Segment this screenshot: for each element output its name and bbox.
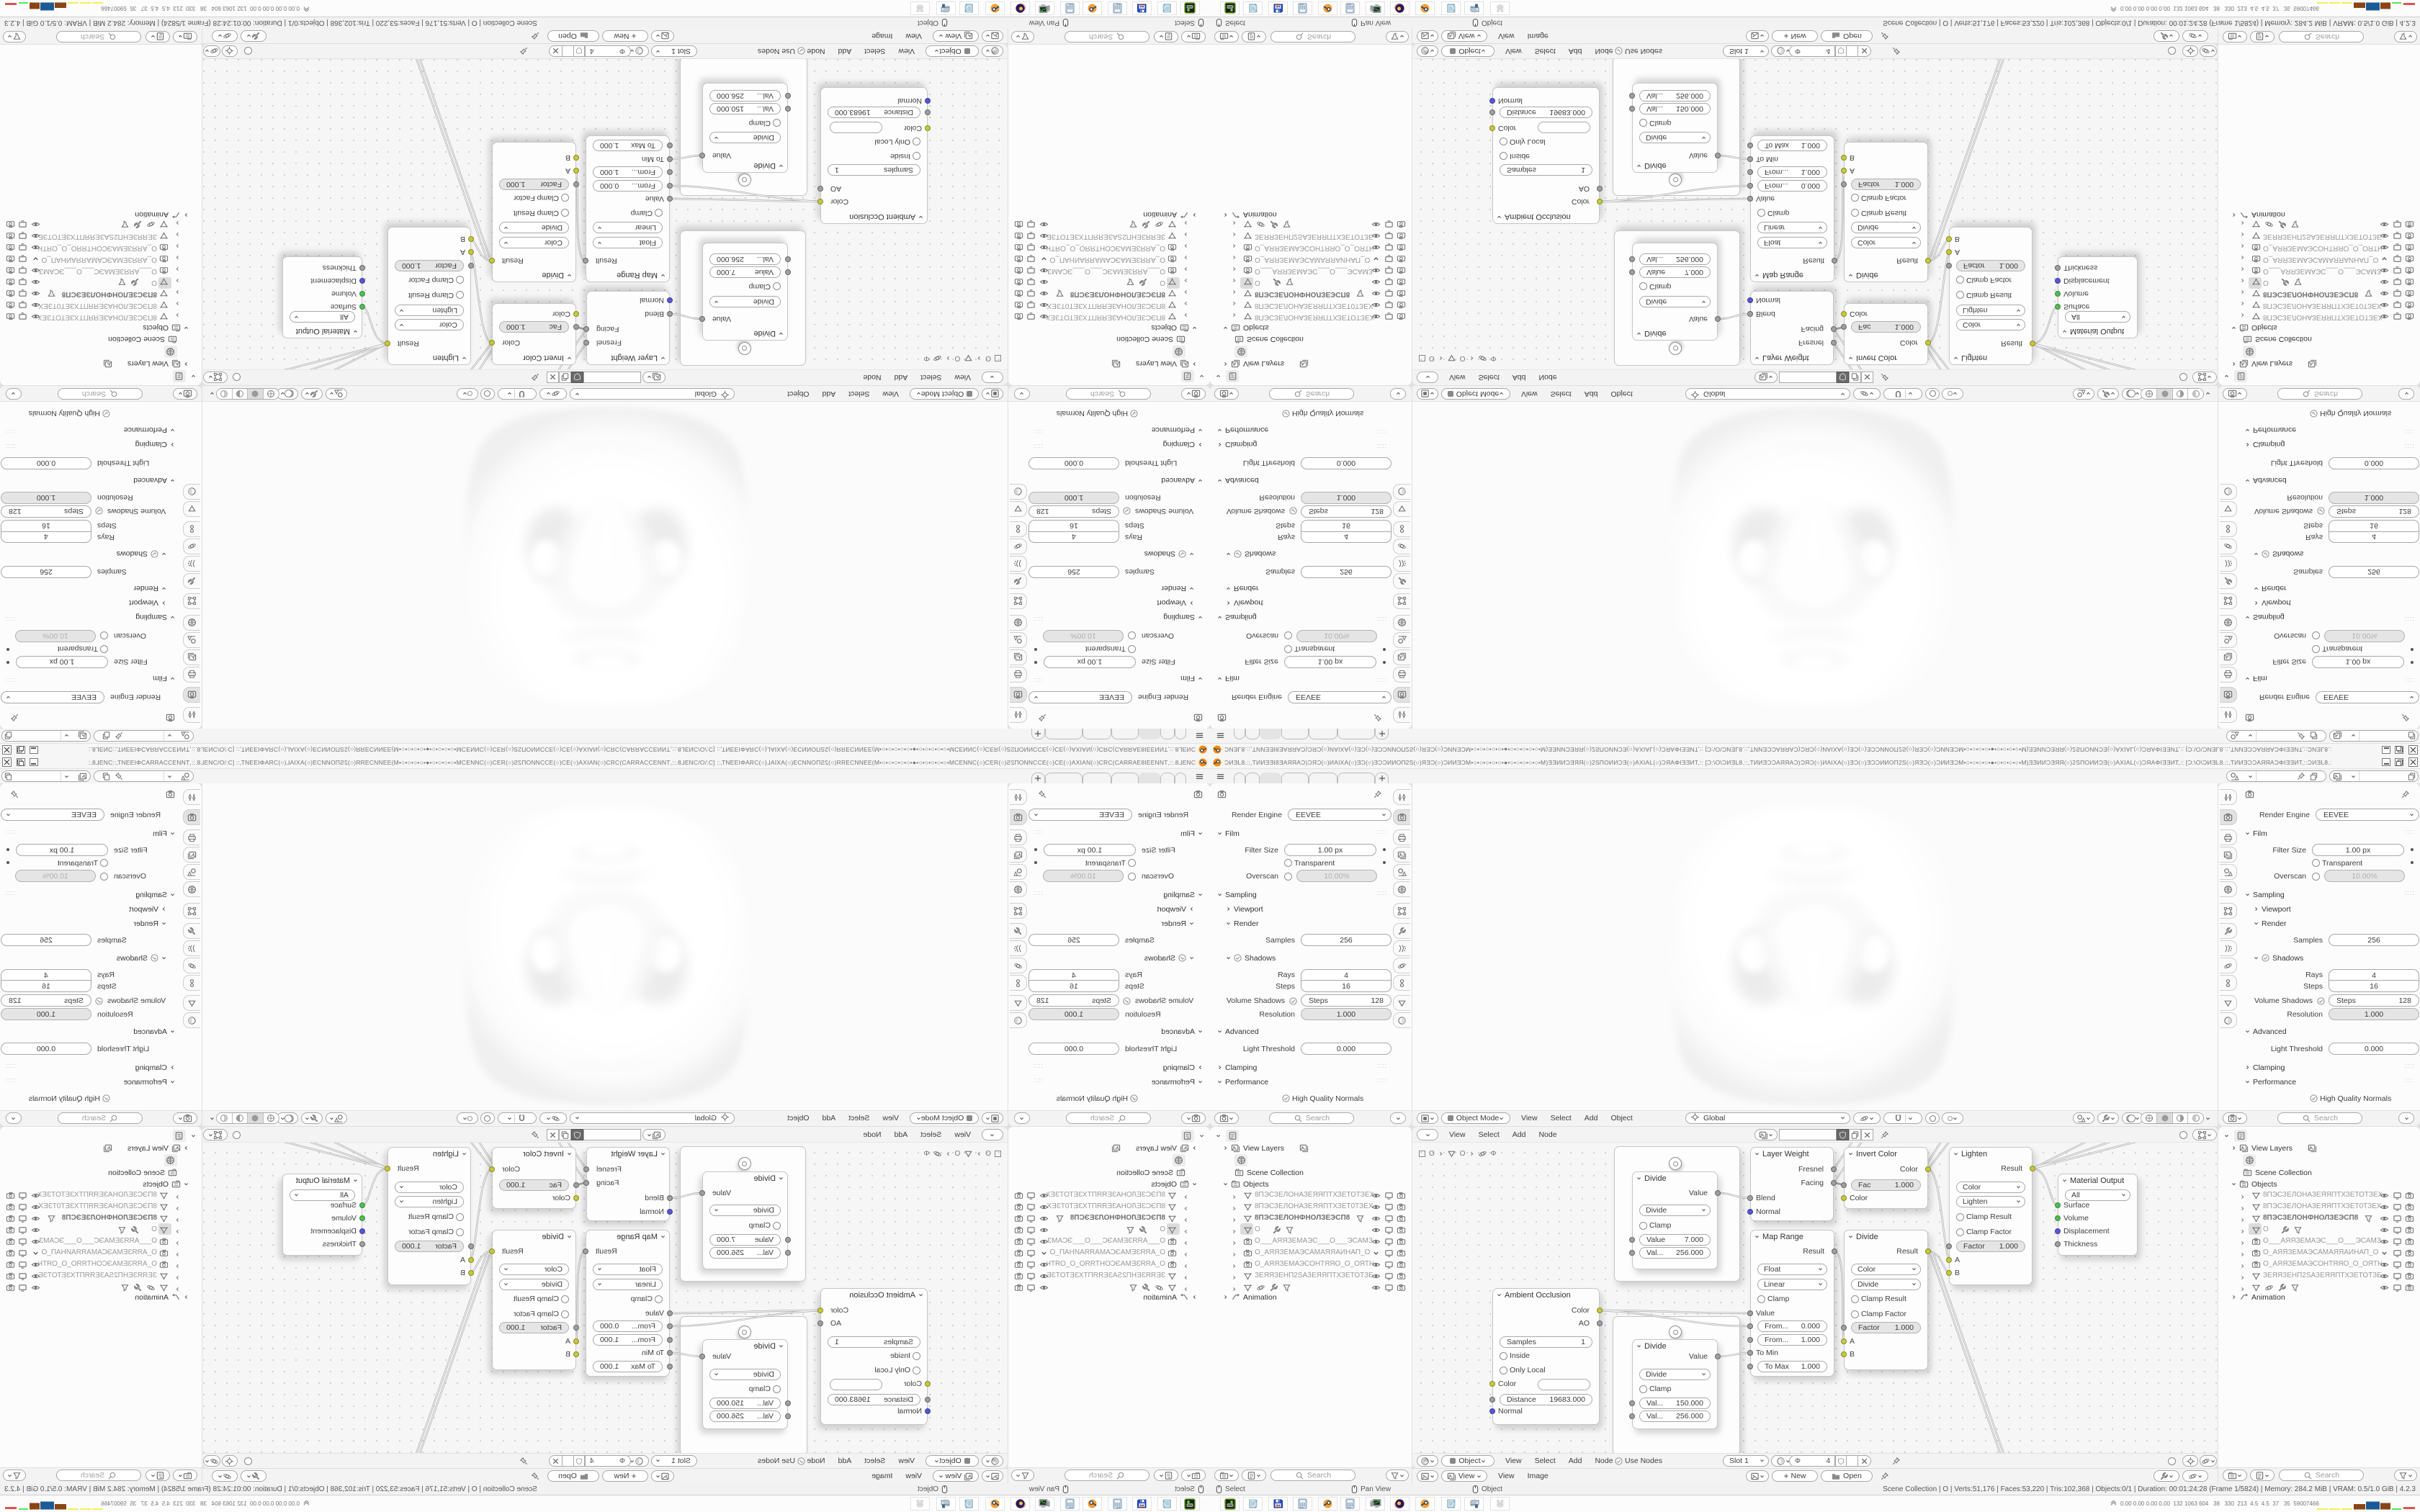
svg-text:64: 64 (1140, 5, 1144, 9)
svg-text:64: 64 (1140, 1503, 1144, 1507)
svg-text:64: 64 (1276, 5, 1281, 9)
svg-text:64: 64 (1276, 1503, 1281, 1507)
